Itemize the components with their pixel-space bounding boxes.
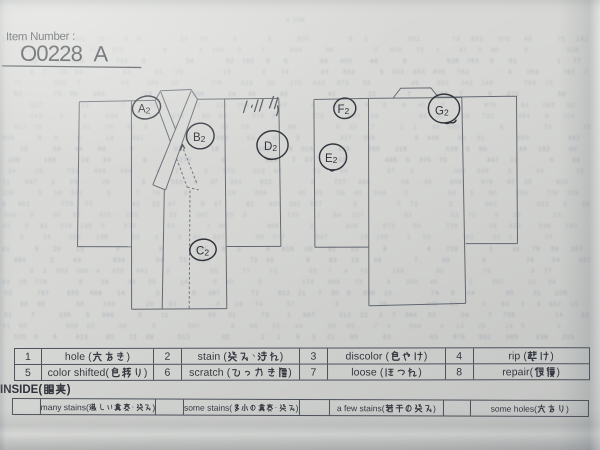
svg-text:F2: F2 [338,104,350,116]
svg-text:A2: A2 [138,104,151,116]
svg-text:B2: B2 [193,132,206,144]
svg-text:G2: G2 [435,106,449,118]
svg-text:E2: E2 [325,153,338,165]
svg-text:C2: C2 [196,246,209,258]
svg-text:D2: D2 [264,141,277,153]
